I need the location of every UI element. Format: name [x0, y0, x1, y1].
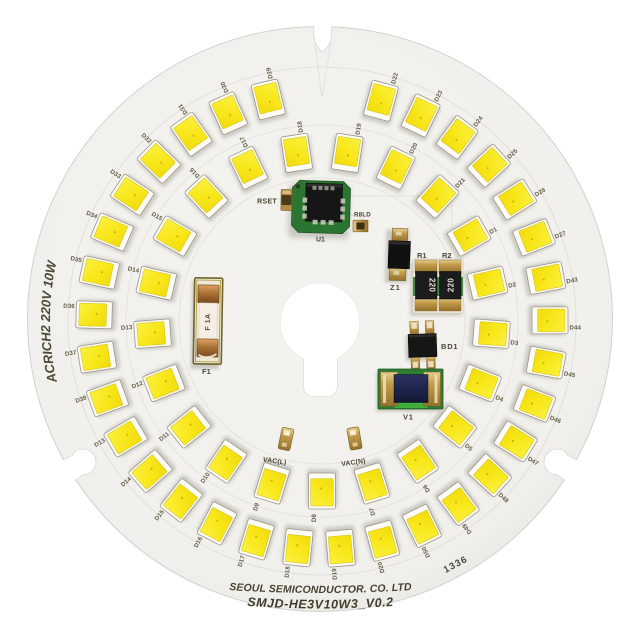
svg-text:F 1A: F 1A [205, 313, 212, 330]
svg-text:BD1: BD1 [441, 342, 458, 351]
svg-text:F1: F1 [202, 367, 211, 376]
svg-text:V1: V1 [403, 413, 414, 422]
svg-text:U1: U1 [316, 237, 325, 244]
svg-text:R8LD: R8LD [354, 212, 371, 219]
svg-text:220: 220 [427, 278, 436, 292]
svg-text:D8: D8 [311, 513, 318, 522]
svg-text:Z1: Z1 [390, 283, 401, 292]
svg-text:D19: D19 [331, 567, 339, 580]
svg-text:D44: D44 [570, 324, 582, 331]
svg-text:D36: D36 [63, 303, 75, 310]
svg-text:D3: D3 [510, 339, 519, 347]
svg-text:R2: R2 [442, 251, 452, 260]
svg-text:R1: R1 [417, 251, 427, 260]
svg-text:220: 220 [447, 278, 456, 292]
svg-text:RSET: RSET [257, 199, 277, 206]
svg-text:D13: D13 [121, 324, 133, 332]
svg-text:D18: D18 [284, 565, 292, 578]
